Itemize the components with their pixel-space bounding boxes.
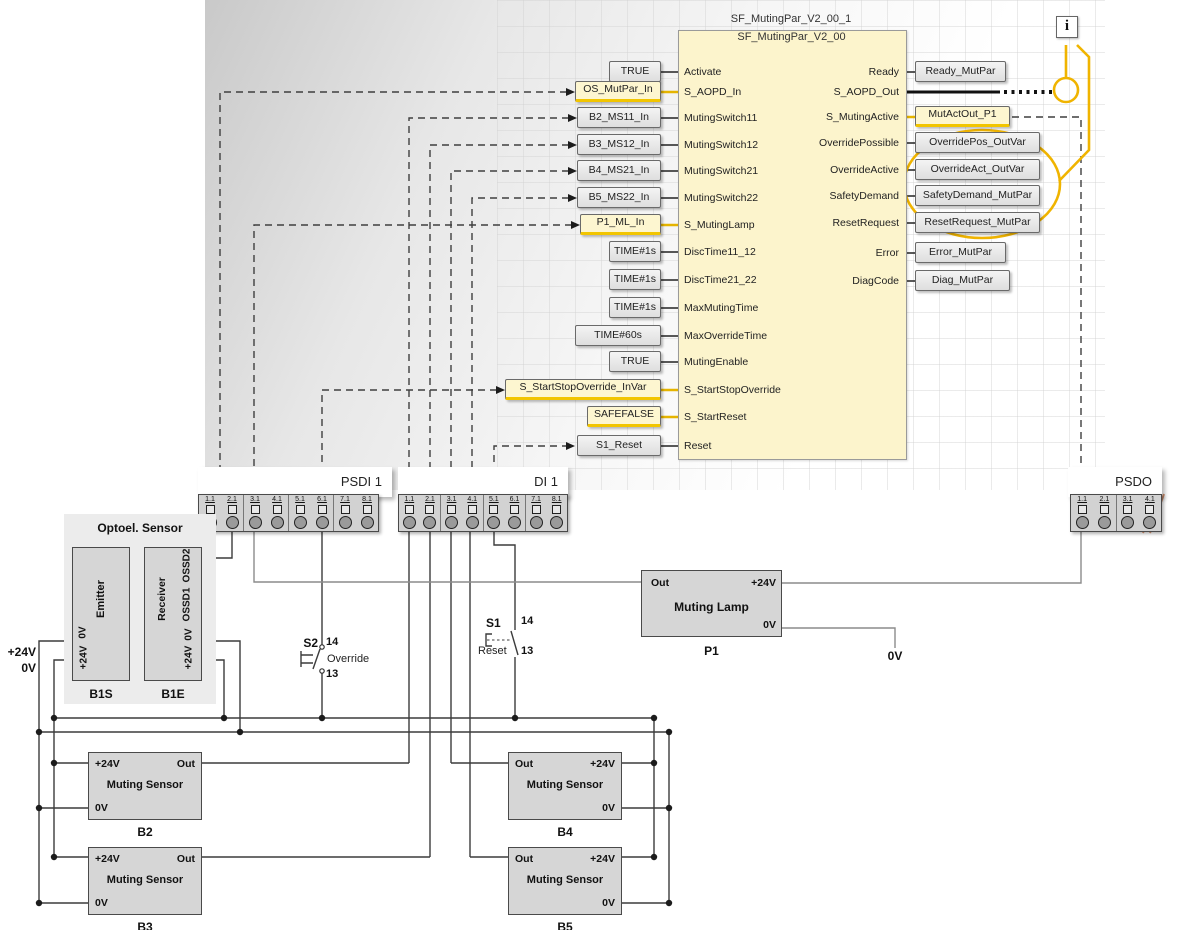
terminal-number[interactable]: 6.1 xyxy=(317,496,327,504)
input-variable-box[interactable]: TIME#60s xyxy=(575,325,661,346)
receiver-pin-ossd2: OSSD2 xyxy=(182,546,193,586)
output-variable-box[interactable]: Ready_MutPar xyxy=(915,61,1006,82)
terminal-point[interactable]: 3.1 xyxy=(441,495,462,531)
terminal-point[interactable]: 7.1 xyxy=(526,495,547,531)
di-label: DI 1 xyxy=(534,467,558,497)
terminal-number[interactable]: 1.1 xyxy=(205,496,215,504)
terminal-number[interactable]: 2.1 xyxy=(1100,496,1110,504)
terminal-number[interactable]: 3.1 xyxy=(250,496,260,504)
terminal-socket[interactable] xyxy=(530,516,543,529)
psdi-label: PSDI 1 xyxy=(341,467,382,497)
terminal-socket[interactable] xyxy=(487,516,500,529)
psdo-label: PSDO xyxy=(1115,467,1152,497)
fb-input-pin[interactable]: MaxMutingTime xyxy=(684,301,864,315)
terminal-point[interactable]: 6.1 xyxy=(311,495,334,531)
input-variable-box[interactable]: P1_ML_In xyxy=(580,214,661,235)
output-variable-box[interactable]: Diag_MutPar xyxy=(915,270,1010,291)
lamp-24v-pin: +24V xyxy=(732,577,776,589)
terminal-socket[interactable] xyxy=(249,516,262,529)
terminal-point[interactable]: 2.1 xyxy=(1093,495,1116,531)
lamp-0v-pin: 0V xyxy=(732,619,776,631)
s2-no-label: 14 xyxy=(326,636,338,648)
input-variable-box[interactable]: B4_MS21_In xyxy=(577,160,661,181)
terminal-point[interactable]: 3.1 xyxy=(244,495,266,531)
fb-output-pin[interactable]: ResetRequest xyxy=(719,216,899,230)
s1-ref: S1 xyxy=(486,616,501,630)
terminal-point[interactable]: 2.1 xyxy=(221,495,244,531)
supply-24v-label: +24V xyxy=(0,645,36,659)
terminal-socket[interactable] xyxy=(423,516,436,529)
terminal-point[interactable]: 5.1 xyxy=(289,495,311,531)
terminal-socket[interactable] xyxy=(339,516,352,529)
terminal-point[interactable]: 4.1 xyxy=(462,495,484,531)
fb-output-pin[interactable]: Ready xyxy=(719,65,899,79)
terminal-number[interactable]: 3.1 xyxy=(447,496,457,504)
terminal-clamp[interactable] xyxy=(405,505,414,514)
di-terminal-plate: DI 1 xyxy=(398,467,568,497)
output-variable-box[interactable]: Error_MutPar xyxy=(915,242,1006,263)
terminal-number[interactable]: 1.1 xyxy=(404,496,414,504)
terminal-clamp[interactable] xyxy=(425,505,434,514)
terminal-number[interactable]: 4.1 xyxy=(1145,496,1155,504)
terminal-number[interactable]: 5.1 xyxy=(489,496,499,504)
sensor-title[interactable]: Muting Sensor xyxy=(508,779,622,791)
terminal-clamp[interactable] xyxy=(447,505,456,514)
sensor-ref[interactable]: B3 xyxy=(88,920,202,930)
terminal-number[interactable]: 8.1 xyxy=(362,496,372,504)
lamp-title: Muting Lamp xyxy=(641,600,782,614)
fb-instance-title: SF_MutingPar_V2_00_1 xyxy=(660,13,922,25)
terminal-clamp[interactable] xyxy=(228,505,237,514)
terminal-point[interactable]: 1.1 xyxy=(1071,495,1093,531)
terminal-socket[interactable] xyxy=(294,516,307,529)
terminal-point[interactable]: 3.1 xyxy=(1117,495,1139,531)
input-variable-box[interactable]: TRUE xyxy=(609,351,661,372)
psdi-terminal-plate: PSDI 1 xyxy=(198,467,392,497)
fb-input-pin[interactable]: S_StartReset xyxy=(684,410,864,424)
terminal-point[interactable]: 1.1 xyxy=(399,495,420,531)
sensor-pin[interactable]: +24V xyxy=(95,758,120,770)
terminal-clamp[interactable] xyxy=(273,505,282,514)
terminal-clamp[interactable] xyxy=(489,505,498,514)
terminal-point[interactable]: 6.1 xyxy=(504,495,526,531)
fb-input-pin[interactable]: MaxOverrideTime xyxy=(684,329,864,343)
terminal-point[interactable]: 2.1 xyxy=(420,495,442,531)
input-variable-box[interactable]: S_StartStopOverride_InVar xyxy=(505,379,661,400)
input-variable-box[interactable]: SAFEFALSE xyxy=(587,406,661,427)
sensor-title[interactable]: Muting Sensor xyxy=(88,779,202,791)
sensor-pin-0v[interactable]: 0V xyxy=(95,802,108,814)
input-variable-box[interactable]: TIME#1s xyxy=(609,241,661,262)
terminal-clamp[interactable] xyxy=(1145,505,1154,514)
terminal-clamp[interactable] xyxy=(1100,505,1109,514)
input-variable-box[interactable]: B3_MS12_In xyxy=(577,134,661,155)
sensor-pin-0v[interactable]: 0V xyxy=(568,802,615,814)
terminal-clamp[interactable] xyxy=(532,505,541,514)
emitter-pin-24v: +24V xyxy=(79,638,90,678)
terminal-number[interactable]: 3.1 xyxy=(1123,496,1133,504)
terminal-number[interactable]: 7.1 xyxy=(340,496,350,504)
output-variable-box[interactable]: OverridePos_OutVar xyxy=(915,132,1040,153)
terminal-clamp[interactable] xyxy=(363,505,372,514)
terminal-socket[interactable] xyxy=(445,516,458,529)
lamp-out-pin: Out xyxy=(651,577,669,589)
s1-no-label: 14 xyxy=(521,615,533,627)
fb-type-label: SF_MutingPar_V2_00 xyxy=(678,31,905,43)
terminal-socket[interactable] xyxy=(403,516,416,529)
s2-ref: S2 xyxy=(290,636,318,650)
sensor-pin[interactable]: Out xyxy=(148,758,195,770)
sensor-pin-0v[interactable]: 0V xyxy=(95,897,108,909)
receiver-pin-24v: +24V xyxy=(184,638,195,678)
sensor-ref[interactable]: B5 xyxy=(508,920,622,930)
terminal-socket[interactable] xyxy=(466,516,479,529)
terminal-point[interactable]: 4.1 xyxy=(1139,495,1161,531)
s2-function-label: Override xyxy=(327,653,369,665)
fb-output-pin[interactable]: S_MutingActive xyxy=(719,110,899,124)
terminal-clamp[interactable] xyxy=(318,505,327,514)
terminal-socket[interactable] xyxy=(550,516,563,529)
input-variable-box[interactable]: TIME#1s xyxy=(609,269,661,290)
terminal-number[interactable]: 2.1 xyxy=(227,496,237,504)
supply-0v-label: 0V xyxy=(0,661,36,675)
terminal-clamp[interactable] xyxy=(296,505,305,514)
emitter-label: Emitter xyxy=(95,569,107,629)
output-variable-box[interactable]: MutActOut_P1 xyxy=(915,106,1010,127)
terminal-clamp[interactable] xyxy=(510,505,519,514)
sensor-pin[interactable]: +24V xyxy=(568,758,615,770)
diagram-canvas: i SF_MutingPar_V2_00_1 SF_MutingPar_V2_0… xyxy=(0,0,1183,930)
terminal-point[interactable]: 8.1 xyxy=(356,495,378,531)
sensor-title[interactable]: Muting Sensor xyxy=(508,874,622,886)
terminal-clamp[interactable] xyxy=(1123,505,1132,514)
terminal-clamp[interactable] xyxy=(1078,505,1087,514)
terminal-point[interactable]: 7.1 xyxy=(334,495,356,531)
receiver-label: Receiver xyxy=(156,566,168,632)
fb-output-pin[interactable]: Error xyxy=(719,246,899,260)
sensor-pin[interactable]: Out xyxy=(515,758,533,770)
terminal-number[interactable]: 4.1 xyxy=(272,496,282,504)
terminal-number[interactable]: 8.1 xyxy=(552,496,562,504)
sensor-title[interactable]: Muting Sensor xyxy=(88,874,202,886)
optoel-title: Optoel. Sensor xyxy=(64,521,216,535)
terminal-socket[interactable] xyxy=(316,516,329,529)
sensor-pin[interactable]: +24V xyxy=(95,853,120,865)
input-variable-box[interactable]: B2_MS11_In xyxy=(577,107,661,128)
terminal-socket[interactable] xyxy=(271,516,284,529)
sensor-ref[interactable]: B2 xyxy=(88,825,202,839)
fb-output-pin[interactable]: SafetyDemand xyxy=(719,189,899,203)
terminal-number[interactable]: 7.1 xyxy=(531,496,541,504)
terminal-socket[interactable] xyxy=(226,516,239,529)
terminal-socket[interactable] xyxy=(1121,516,1134,529)
terminal-clamp[interactable] xyxy=(468,505,477,514)
di-terminal-strip[interactable]: 1.12.13.14.15.16.17.18.1 xyxy=(398,494,568,532)
fb-input-pin[interactable]: S_StartStopOverride xyxy=(684,383,864,397)
sensor-pin[interactable]: Out xyxy=(515,853,533,865)
input-variable-box[interactable]: TIME#1s xyxy=(609,297,661,318)
psdo-terminal-strip[interactable]: 1.12.13.14.1 xyxy=(1070,494,1162,532)
input-variable-box[interactable]: B5_MS22_In xyxy=(577,187,661,208)
terminal-socket[interactable] xyxy=(361,516,374,529)
psdi-terminal-strip[interactable]: 1.12.13.14.15.16.17.18.1 xyxy=(198,494,379,532)
psdo-terminal-plate: PSDO xyxy=(1068,467,1162,497)
terminal-number[interactable]: 4.1 xyxy=(467,496,477,504)
emitter-ref: B1S xyxy=(72,687,130,701)
fb-input-pin[interactable]: MutingEnable xyxy=(684,355,864,369)
terminal-clamp[interactable] xyxy=(341,505,350,514)
input-variable-box[interactable]: S1_Reset xyxy=(577,435,661,456)
terminal-clamp[interactable] xyxy=(552,505,561,514)
terminal-point[interactable]: 5.1 xyxy=(484,495,505,531)
fb-output-pin[interactable]: OverrideActive xyxy=(719,163,899,177)
output-variable-box[interactable]: OverrideAct_OutVar xyxy=(915,159,1040,180)
sensor-pin-0v[interactable]: 0V xyxy=(568,897,615,909)
terminal-point[interactable]: 4.1 xyxy=(266,495,289,531)
terminal-socket[interactable] xyxy=(1098,516,1111,529)
s2-nc-label: 13 xyxy=(326,668,338,680)
info-icon[interactable]: i xyxy=(1056,16,1078,38)
fb-output-pin[interactable]: S_AOPD_Out xyxy=(719,85,899,99)
fb-input-pin[interactable]: Reset xyxy=(684,439,864,453)
sensor-pin[interactable]: +24V xyxy=(568,853,615,865)
terminal-number[interactable]: 2.1 xyxy=(425,496,435,504)
sensor-ref[interactable]: B4 xyxy=(508,825,622,839)
terminal-number[interactable]: 5.1 xyxy=(295,496,305,504)
terminal-clamp[interactable] xyxy=(251,505,260,514)
input-variable-box[interactable]: OS_MutPar_In xyxy=(575,81,661,102)
s1-function-label: Reset xyxy=(478,645,507,657)
output-variable-box[interactable]: ResetRequest_MutPar xyxy=(915,212,1040,233)
input-variable-box[interactable]: TRUE xyxy=(609,61,661,82)
fb-output-pin[interactable]: OverridePossible xyxy=(719,136,899,150)
terminal-socket[interactable] xyxy=(1076,516,1089,529)
fb-output-pin[interactable]: DiagCode xyxy=(719,274,899,288)
terminal-point[interactable]: 8.1 xyxy=(546,495,567,531)
contact-points xyxy=(320,645,324,673)
s1-nc-label: 13 xyxy=(521,645,533,657)
sensor-pin[interactable]: Out xyxy=(148,853,195,865)
receiver-ref: B1E xyxy=(144,687,202,701)
terminal-number[interactable]: 6.1 xyxy=(510,496,520,504)
terminal-socket[interactable] xyxy=(1143,516,1156,529)
lamp-ref: P1 xyxy=(641,644,782,658)
terminal-number[interactable]: 1.1 xyxy=(1077,496,1087,504)
terminal-clamp[interactable] xyxy=(206,505,215,514)
output-variable-box[interactable]: SafetyDemand_MutPar xyxy=(915,185,1040,206)
terminal-socket[interactable] xyxy=(508,516,521,529)
lamp-0v-drop-label: 0V xyxy=(875,649,915,663)
